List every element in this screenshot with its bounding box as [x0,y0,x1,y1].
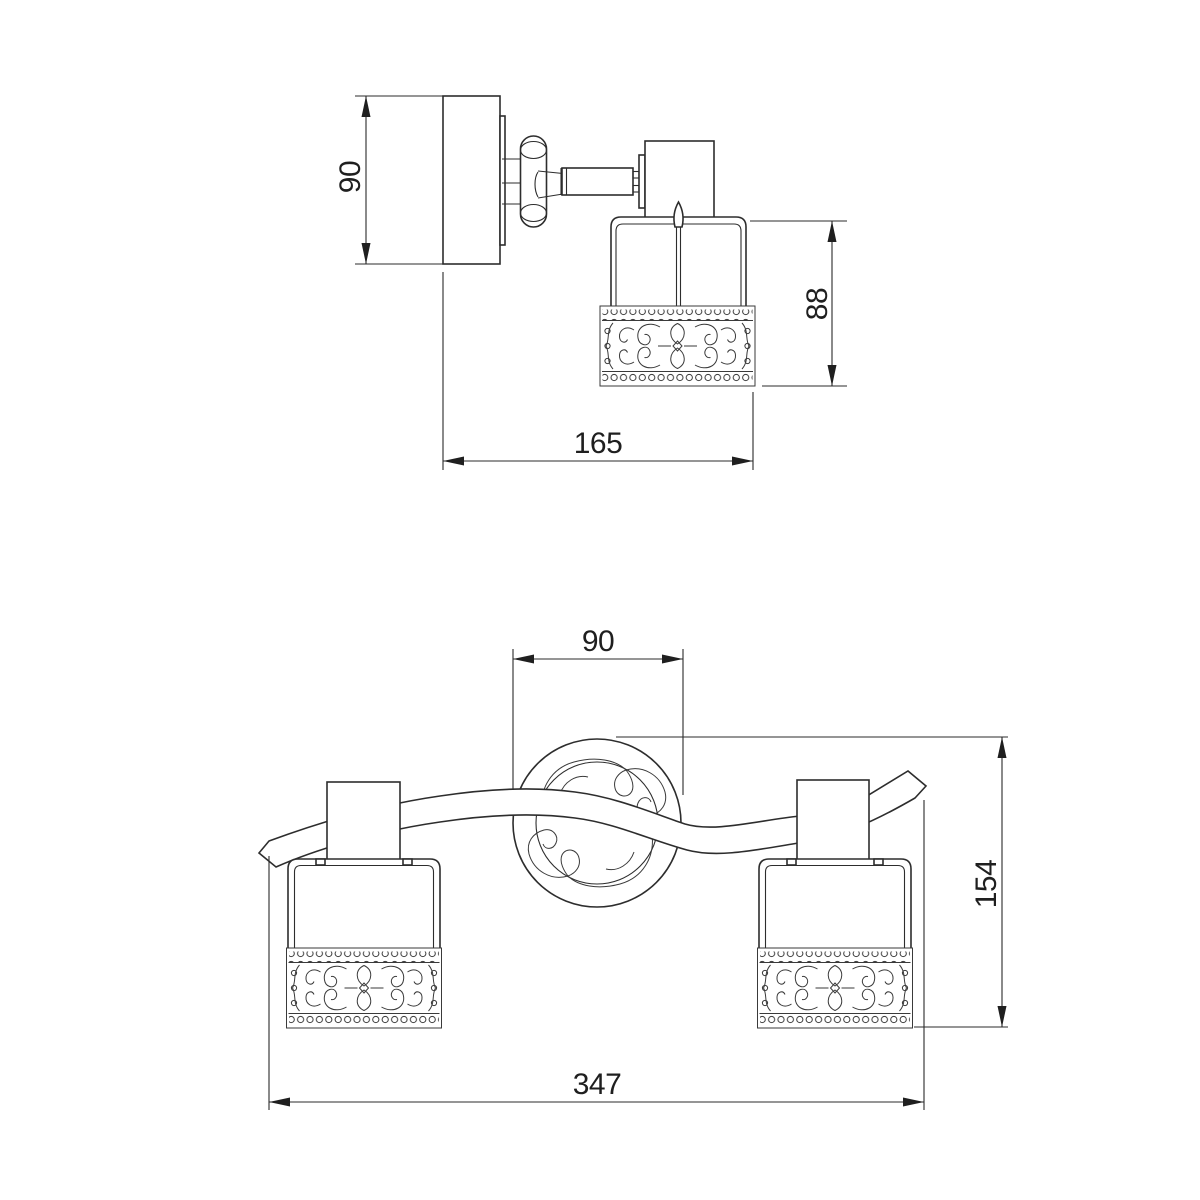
left-lamp-stem [327,782,400,862]
dim-label-projection: 165 [574,427,623,460]
dimension-arrow [443,457,464,466]
dimension-arrow [828,221,837,242]
dimension-arrow [732,457,753,466]
right-lamp-stem [797,780,869,860]
dimension-arrow [998,1006,1007,1027]
dim-label-overall-width: 347 [573,1068,622,1101]
dimension-shade-height: 88 [750,221,847,386]
dimension-arrow [828,365,837,386]
dimension-arrow [513,655,534,664]
lace-band-side [600,306,755,386]
technical-drawing-page: 90 88 165 [0,0,1200,1200]
dimension-backplate-height: 90 [334,96,444,264]
lamp-technical-drawing: 90 88 165 [0,0,1200,1200]
dim-label-shade-height: 88 [801,288,834,320]
dimension-arrow [998,737,1007,758]
wall-backplate [443,96,505,264]
dim-label-canopy-width: 90 [582,625,614,658]
side-view-single-lamp: 90 88 165 [334,96,847,470]
dimension-arrow [662,655,683,664]
pivot-joint [502,136,563,227]
dimension-arrow [362,96,371,117]
dimension-arrow [269,1098,290,1107]
left-lamp-shade [287,859,442,1028]
lamp-shade-side [600,202,755,386]
dimension-arrow [903,1098,924,1107]
dimension-arrow [362,243,371,264]
front-view-twin-lamp: 90 154 347 [259,625,1008,1110]
dim-label-backplate-height: 90 [334,161,367,193]
right-lamp-shade [758,859,913,1028]
dim-label-fixture-height: 154 [970,860,1003,909]
swivel-arm [561,155,645,208]
